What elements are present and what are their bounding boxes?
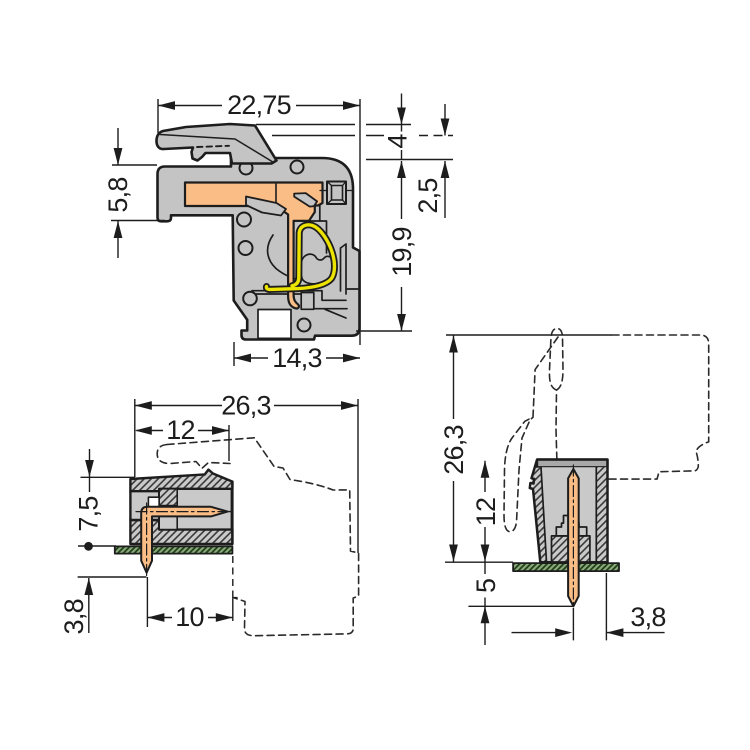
svg-text:26,3: 26,3 xyxy=(221,391,271,421)
svg-text:3,8: 3,8 xyxy=(59,599,89,634)
svg-text:10: 10 xyxy=(175,602,204,632)
svg-text:4: 4 xyxy=(382,134,412,149)
svg-text:19,9: 19,9 xyxy=(387,227,417,277)
svg-text:14,3: 14,3 xyxy=(272,343,322,373)
svg-text:5: 5 xyxy=(471,579,501,593)
svg-text:7,5: 7,5 xyxy=(73,496,103,531)
svg-text:12: 12 xyxy=(166,415,195,445)
svg-text:3,8: 3,8 xyxy=(630,602,665,632)
svg-text:5,8: 5,8 xyxy=(103,177,133,212)
svg-text:2,5: 2,5 xyxy=(413,178,443,213)
svg-text:12: 12 xyxy=(471,498,501,527)
svg-text:22,75: 22,75 xyxy=(227,90,291,120)
svg-text:26,3: 26,3 xyxy=(439,425,469,475)
